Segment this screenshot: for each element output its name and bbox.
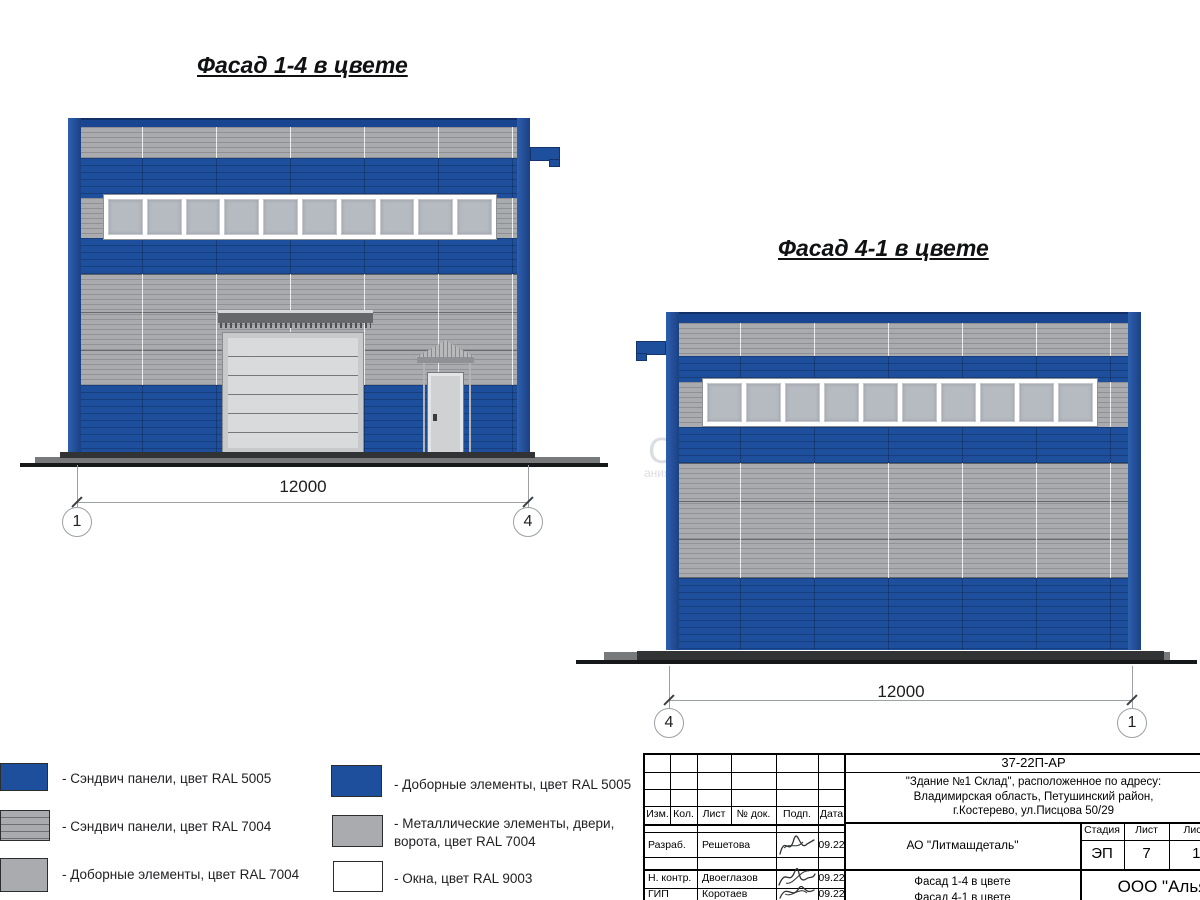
customer-organization: АО "Литмашдеталь" [845,822,1080,869]
facade-band-gray-top [68,127,530,158]
window-pane [186,199,221,235]
legend-swatch-ral7004-panels [0,810,50,841]
dimension-value: 12000 [77,477,529,497]
window-pane [863,383,898,422]
right-facade-drawing [666,312,1141,650]
building-plinth [637,651,1164,660]
ground-line [576,660,1197,664]
legend-label: - Сэндвич панели, цвет RAL 5005 [62,770,322,788]
address-line: г.Костерево, ул.Писцова 50/29 [953,804,1114,819]
right-facade-title: Фасад 4-1 в цвете [778,235,989,262]
sheet-value: 7 [1124,840,1169,869]
design-company: ООО "Альянс" [1082,871,1200,900]
sig-role: ГИП [645,888,697,900]
corner-trim-right [517,118,530,455]
doc-code: 37-22П-АР [845,755,1200,772]
sheet-title: Фасад 1-4 в цвете Фасад 4-1 в цвете [845,871,1080,900]
roof-drain-pipe-end [549,159,560,167]
facade-parapet [68,118,530,127]
sig-date: 09.22 [818,870,845,887]
window-pane [941,383,976,422]
window-pane [302,199,337,235]
legend-label: - Доборные элементы, цвет RAL 5005 [394,776,644,794]
stamp-line [697,755,698,900]
corner-trim-left [666,312,679,650]
axis-marker-4: 4 [513,507,543,537]
window-pane [418,199,453,235]
building-plinth [60,452,535,458]
rev-header-izm: Изм. [645,806,670,824]
left-facade-title: Фасад 1-4 в цвете [197,52,408,79]
signature [776,881,817,900]
stamp-line [645,824,845,826]
gate-canopy [218,310,373,323]
stamp-line [645,789,845,790]
axis-marker-1: 1 [1117,708,1147,738]
sheets-value: 14 [1169,840,1200,869]
roof-drain-pipe-end [636,353,647,361]
facade-band-blue-bottom [666,578,1141,650]
rev-header-data: Дата [818,806,845,824]
window-pane [707,383,742,422]
address-line: Владимирская область, Петушинский район, [914,790,1154,805]
legend-label: - Окна, цвет RAL 9003 [394,870,644,888]
facade-parapet [666,312,1141,323]
facade-band-blue [68,238,530,274]
window-pane [746,383,781,422]
window-pane [341,199,376,235]
canopy-post [469,363,471,455]
window-pane [263,199,298,235]
left-facade-drawing [68,118,530,455]
sig-role: Разраб. [645,834,697,857]
legend-swatch-ral5005-flashing [331,765,382,797]
window-pane [147,199,182,235]
rev-header-list: Лист [697,806,731,824]
sectional-gate [223,333,363,453]
window-pane [785,383,820,422]
facade-band-blue [68,158,530,198]
legend-swatch-ral7004-flashing [0,858,48,892]
drawing-sheet: Фасад 1-4 в цвете Фасад 4-1 в цвете С ан… [0,0,1200,900]
rev-header-podp: Подп. [776,806,818,824]
axis-marker-1: 1 [62,507,92,537]
window-pane [224,199,259,235]
corner-trim-right [1128,312,1141,650]
sheet-label: Лист [1124,822,1169,840]
facade-band-blue [666,427,1141,463]
window-pane [1058,383,1093,422]
gate-canopy-fringe [220,323,371,328]
sig-role: Н. контр. [645,870,697,887]
rev-header-kol: Кол. [670,806,697,824]
signature [776,828,817,860]
sig-date: 09.22 [818,834,845,857]
stage-label: Стадия [1080,822,1124,840]
object-address: "Здание №1 Склад", расположенное по адре… [845,772,1200,822]
entrance-door [428,373,463,455]
sig-name: Коротаев [699,888,773,900]
window-pane [980,383,1015,422]
corner-trim-left [68,118,81,455]
window-pane [108,199,143,235]
legend-label: - Металлические элементы, двери, ворота,… [394,815,644,850]
dimension-value: 12000 [669,682,1133,702]
facade-band-gray-main [666,463,1141,578]
ribbon-window [702,378,1098,427]
door-handle [433,414,437,421]
legend-swatch-ral7004-metal [332,815,383,847]
axis-marker-4: 4 [654,708,684,738]
legend-swatch-ral5005 [0,763,48,791]
door-canopy-board [417,357,474,363]
rev-header-doc: № док. [731,806,776,824]
title-block: Изм. Кол. Лист № док. Подп. Дата Разраб.… [643,753,1200,900]
window-pane [902,383,937,422]
ribbon-window [103,194,497,240]
address-line: "Здание №1 Склад", расположенное по адре… [906,775,1161,790]
window-pane [824,383,859,422]
dimension-line [77,502,529,503]
legend-swatch-ral9003-windows [333,861,383,892]
window-pane [457,199,492,235]
stage-value: ЭП [1080,840,1124,869]
canopy-post [423,363,425,455]
facade-band-gray-top [666,323,1141,356]
window-pane [380,199,415,235]
window-pane [1019,383,1054,422]
sig-date: 09.22 [818,888,845,900]
sheets-label: Листов [1169,822,1200,840]
sheet-title-line: Фасад 4-1 в цвете [914,891,1010,900]
ground-line [20,463,608,467]
legend-label: - Доборные элементы, цвет RAL 7004 [62,866,322,884]
sheet-title-line: Фасад 1-4 в цвете [914,875,1010,891]
sig-name: Решетова [699,834,773,857]
legend-label: - Сэндвич панели, цвет RAL 7004 [62,818,322,836]
sig-name: Двоеглазов [699,870,773,887]
